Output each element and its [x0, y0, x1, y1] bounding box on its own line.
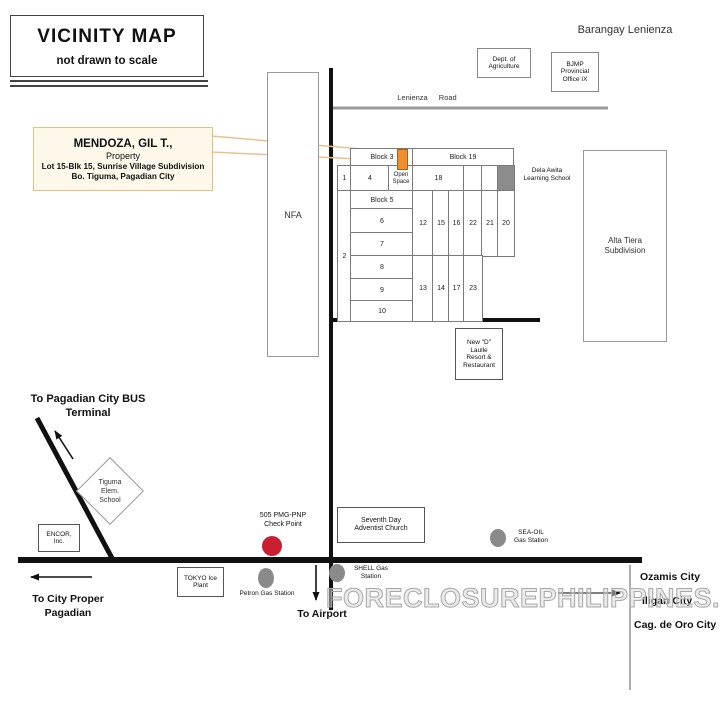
- property-address2: Bo. Tiguma, Pagadian City: [71, 172, 174, 181]
- encor-box: ENCOR, Inc.: [38, 524, 80, 552]
- bus-terminal-line1: To Pagadian City BUS: [6, 392, 170, 406]
- new-d-line3: Resort &: [466, 354, 491, 362]
- checkpoint-line2: Check Point: [228, 521, 338, 530]
- checkpoint-label: 505 PMG-PNP Check Point: [228, 512, 338, 529]
- shell-line2: Station: [347, 573, 395, 581]
- airport-label: To Airport: [290, 608, 354, 620]
- title-divider: [10, 80, 208, 87]
- tokyo-line2: Plant: [193, 582, 208, 590]
- lot-23-cell: 23: [463, 255, 483, 322]
- dela-awita-label: Dela Awita Learning School: [516, 167, 578, 182]
- checkpoint-dot: [262, 536, 282, 556]
- city-proper-line2: Pagadian: [14, 606, 122, 620]
- new-d-line4: Restaurant: [463, 362, 495, 370]
- alta-tiera-line1: Alta Tiera: [608, 236, 642, 246]
- watermark-text: FORECLOSUREPHILIPPINES.COM: [326, 583, 720, 614]
- lot-8-cell: 8: [350, 255, 414, 280]
- lot-6-cell: 6: [350, 208, 414, 234]
- encor-line2: Inc.: [54, 538, 64, 546]
- nfa-box: NFA: [267, 72, 319, 357]
- cagayan-city-label: Cag. de Oro City: [634, 619, 716, 631]
- block-5-cell: Block 5: [350, 190, 414, 210]
- tiguma-school-label: Tiguma Elem. School: [87, 468, 133, 514]
- map-subtitle: not drawn to scale: [57, 55, 158, 67]
- lot-20-cell: 20: [497, 190, 515, 257]
- alta-tiera-line2: Subdivision: [605, 246, 646, 256]
- lot-18-cell: 18: [412, 165, 465, 192]
- lot-9-cell: 9: [350, 278, 414, 302]
- learning-school-cell: [497, 165, 515, 192]
- shell-dot: [329, 564, 345, 582]
- city-proper-line1: To City Proper: [14, 592, 122, 606]
- property-callout-box: MENDOZA, GIL T., Property Lot 15-Blk 15,…: [33, 127, 213, 191]
- encor-line1: ENCOR,: [46, 531, 71, 539]
- tokyo-line1: TOKYO Ice: [184, 575, 217, 583]
- new-d-line1: New "D": [467, 339, 491, 347]
- tiguma-line2: Elem.: [101, 487, 119, 496]
- seaoil-line2: Gas Station: [508, 537, 554, 545]
- property-address1: Lot 15-Blk 15, Sunrise Village Subdivisi…: [42, 162, 205, 171]
- lot-7-cell: 7: [350, 232, 414, 257]
- property-kind: Property: [106, 151, 140, 161]
- bjmp-line3: Office IX: [563, 76, 588, 84]
- bus-terminal-label: To Pagadian City BUS Terminal: [6, 392, 170, 420]
- map-title: VICINITY MAP: [37, 26, 176, 48]
- lot-4-cell: 4: [350, 165, 390, 192]
- checkpoint-line1: 505 PMG-PNP: [228, 512, 338, 521]
- bus-terminal-line2: Terminal: [6, 406, 170, 420]
- adventist-church-box: Seventh Day Adventist Church: [337, 507, 425, 543]
- empty-cell-a: [463, 165, 483, 192]
- lot-10-cell: 10: [350, 300, 414, 322]
- lot-13-cell: 13: [412, 255, 434, 322]
- tiguma-line1: Tiguma: [98, 478, 121, 487]
- shell-line1: SHELL Gas: [347, 565, 395, 573]
- petron-label: Petron Gas Station: [228, 590, 306, 598]
- seaoil-label: SEA-OIL Gas Station: [508, 529, 554, 544]
- nfa-label: NFA: [284, 210, 302, 220]
- vicinity-map: VICINITY MAP not drawn to scale Barangay…: [0, 0, 720, 720]
- city-proper-label: To City Proper Pagadian: [14, 592, 122, 620]
- bjmp-line1: BJMP: [566, 61, 583, 69]
- barangay-label: Barangay Lenienza: [550, 24, 700, 36]
- ozamis-city-label: Ozamis City: [640, 571, 700, 583]
- alta-tiera-box: Alta Tiera Subdivision: [583, 150, 667, 342]
- lot-12-cell: 12: [412, 190, 434, 257]
- dept-agriculture-box: Dept. of Agriculture: [477, 48, 531, 78]
- dela-awita-line2: Learning School: [516, 175, 578, 183]
- seaoil-line1: SEA-OIL: [508, 529, 554, 537]
- dept-agriculture-line1: Dept. of: [493, 56, 516, 64]
- petron-dot: [258, 568, 274, 588]
- bjmp-line2: Provincial: [561, 68, 589, 76]
- property-owner: MENDOZA, GIL T.,: [74, 138, 173, 150]
- tokyo-ice-box: TOKYO Ice Plant: [177, 567, 224, 597]
- seaoil-dot: [490, 529, 506, 547]
- shell-label: SHELL Gas Station: [347, 565, 395, 580]
- new-d-line2: Laulle: [470, 347, 487, 355]
- property-highlight-cell: [397, 149, 408, 170]
- open-space-line2: Space: [392, 179, 409, 186]
- dela-awita-line1: Dela Awita: [516, 167, 578, 175]
- title-box: VICINITY MAP not drawn to scale: [10, 15, 204, 77]
- adventist-line1: Seventh Day: [361, 517, 401, 526]
- lenienza-road-label: Lenienza Road: [372, 93, 482, 102]
- new-d-resort-box: New "D" Laulle Resort & Restaurant: [455, 328, 503, 380]
- bjmp-box: BJMP Provincial Office IX: [551, 52, 599, 92]
- lot-22-cell: 22: [463, 190, 483, 257]
- adventist-line2: Adventist Church: [354, 525, 407, 534]
- tiguma-line3: School: [99, 496, 120, 505]
- dept-agriculture-line2: Agriculture: [488, 63, 519, 71]
